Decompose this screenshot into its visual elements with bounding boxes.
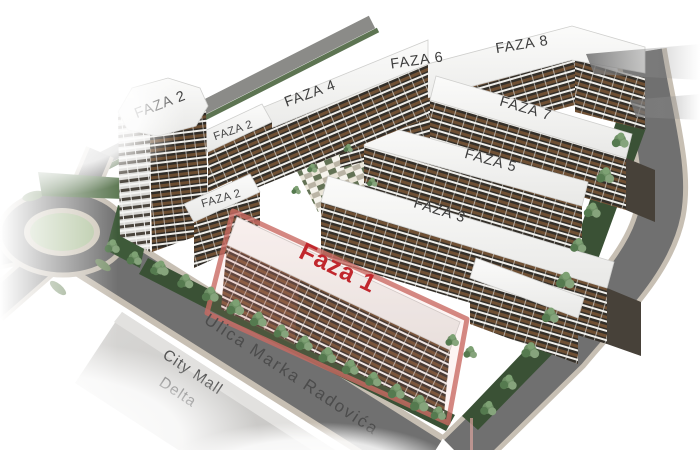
site-plan-rendering: FAZA 2 FAZA 2 FAZA 2 FAZA 4 FAZA 6 FAZA … [0, 0, 700, 450]
site-plan-canvas: FAZA 2 FAZA 2 FAZA 2 FAZA 4 FAZA 6 FAZA … [0, 0, 700, 450]
red-outline-artifact [470, 418, 473, 450]
